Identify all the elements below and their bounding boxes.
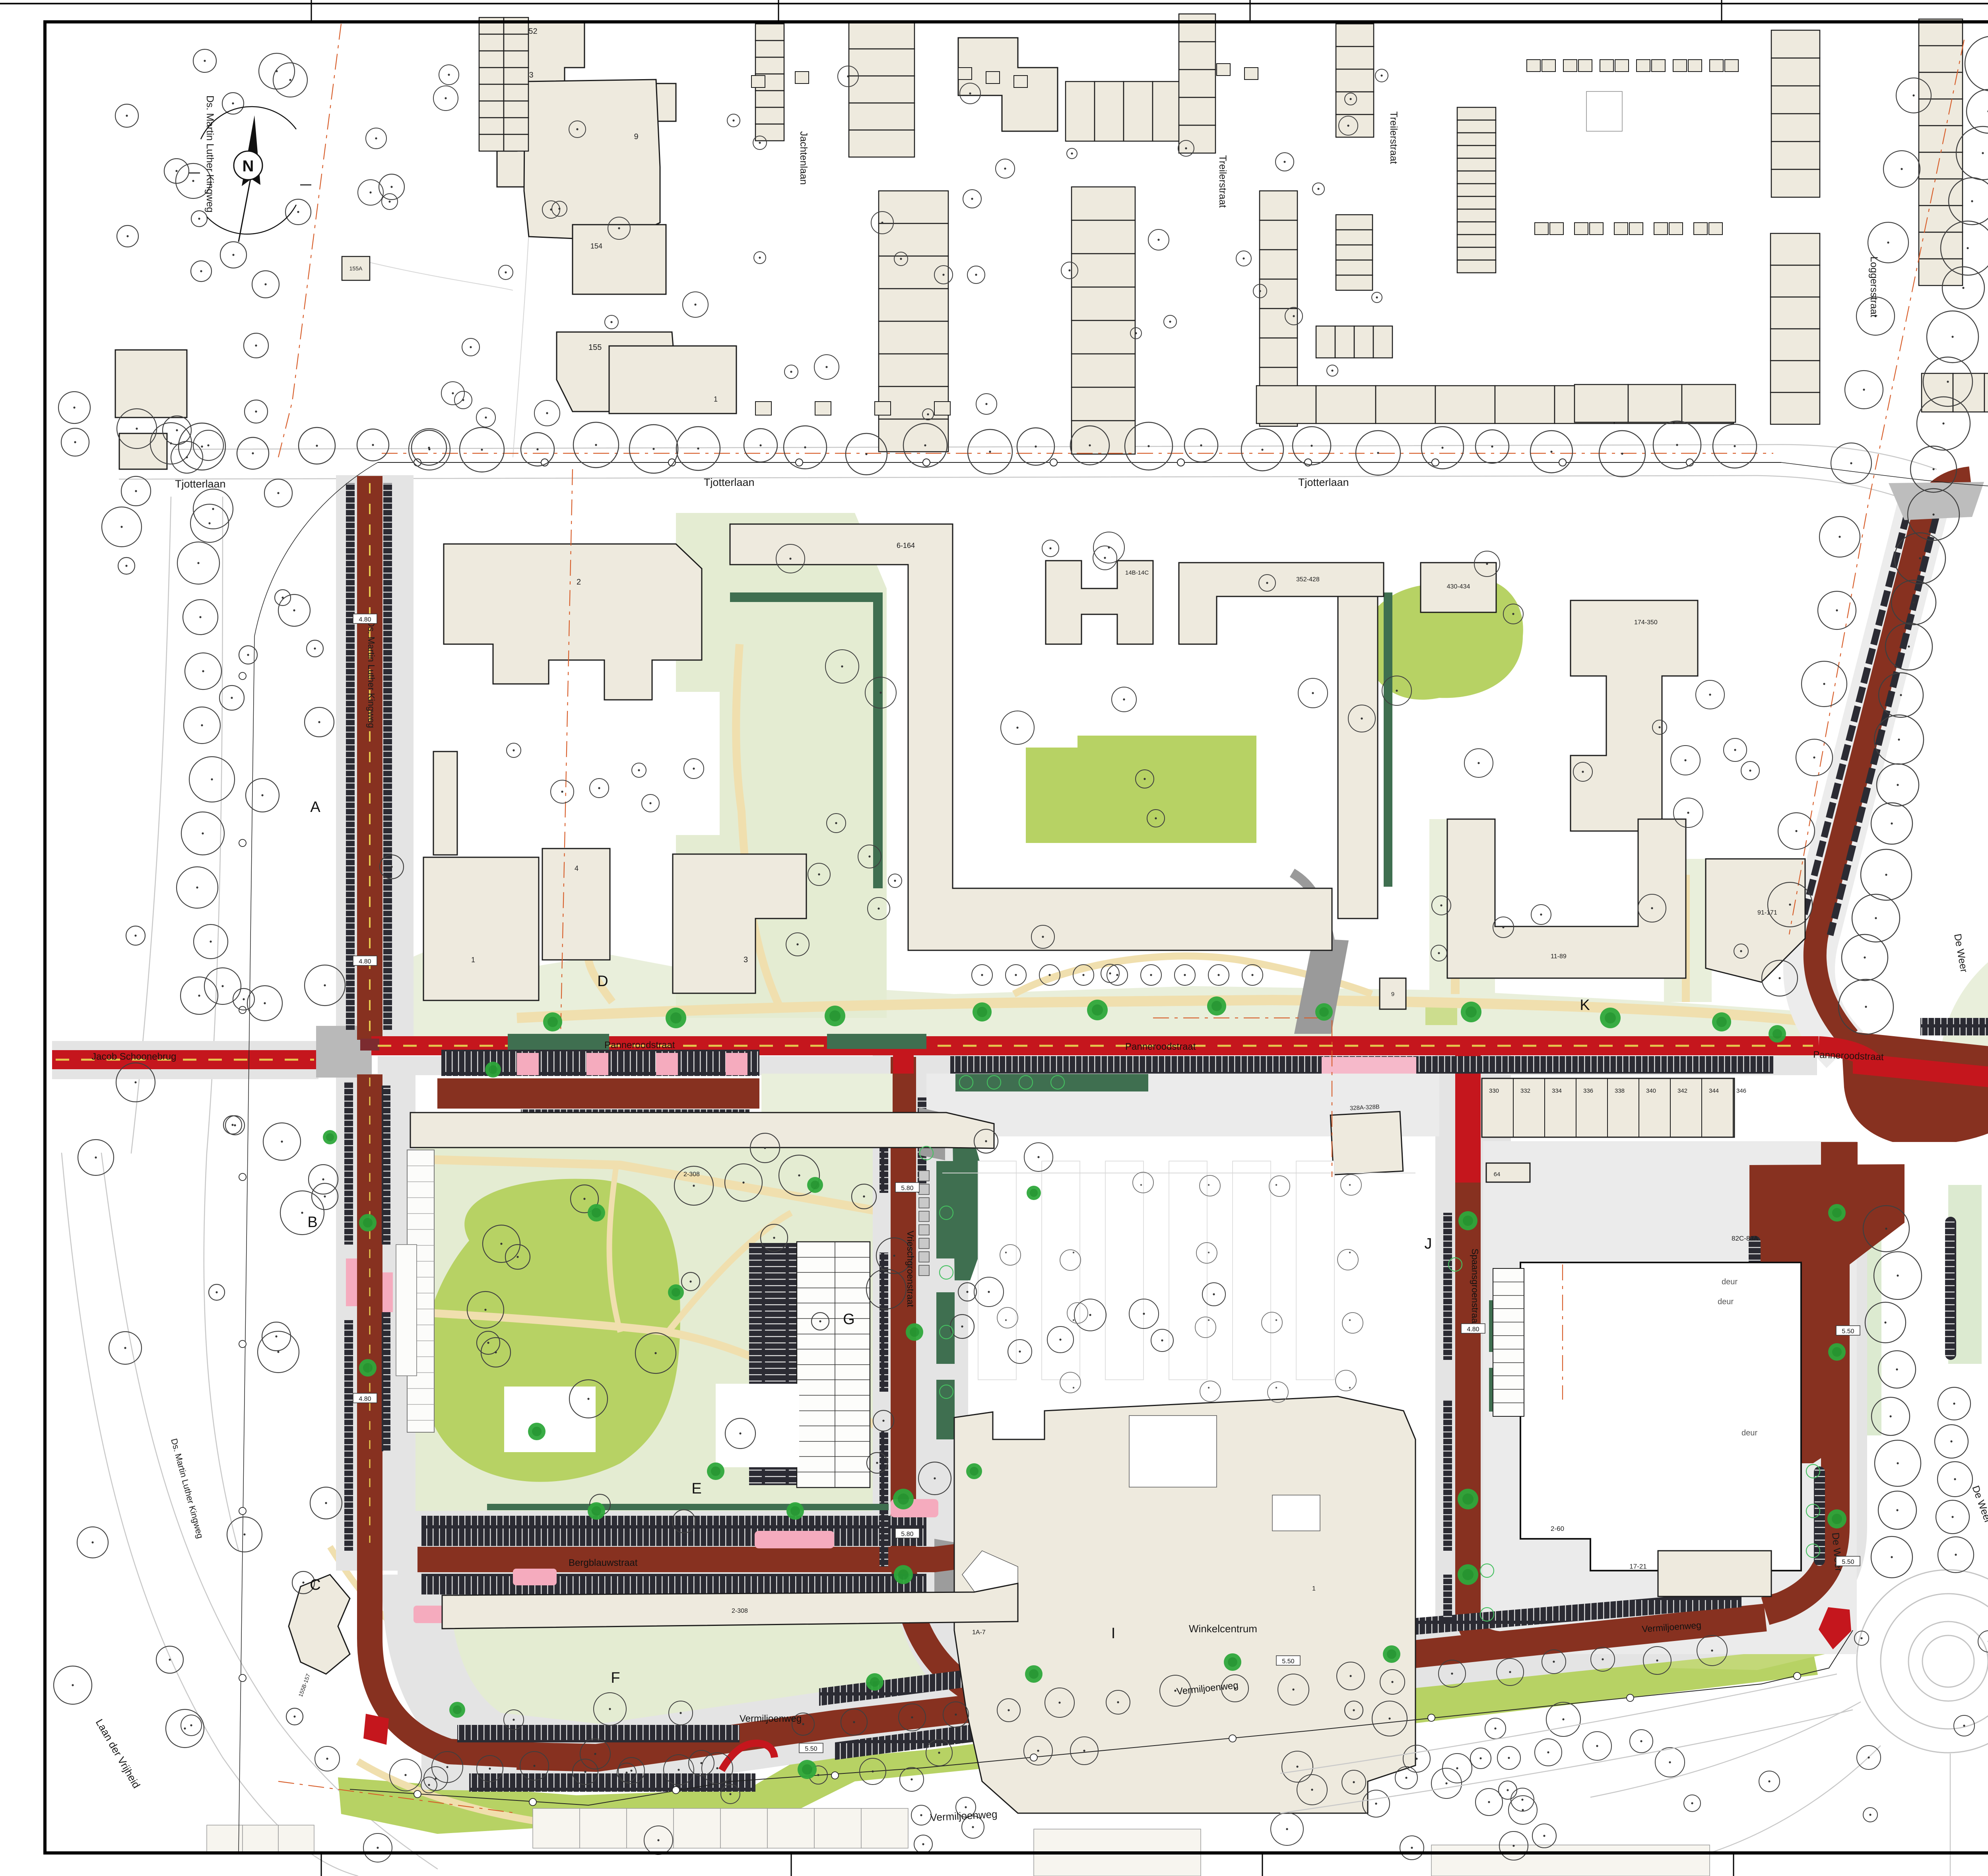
- svg-text:2: 2: [577, 578, 581, 586]
- svg-text:155: 155: [588, 343, 602, 352]
- svg-text:1: 1: [714, 395, 718, 403]
- svg-text:Spaansgroenstraat: Spaansgroenstraat: [1470, 1249, 1480, 1326]
- svg-text:5.80: 5.80: [901, 1185, 913, 1192]
- svg-text:Ds. Martin Luther Kingweg: Ds. Martin Luther Kingweg: [204, 95, 215, 213]
- svg-text:1: 1: [1312, 1585, 1316, 1592]
- svg-text:F: F: [611, 1670, 620, 1686]
- svg-text:336: 336: [1583, 1088, 1593, 1094]
- svg-text:91-171: 91-171: [1757, 909, 1777, 916]
- svg-text:352-428: 352-428: [1296, 576, 1320, 583]
- svg-text:Bergblauwstraat: Bergblauwstraat: [569, 1558, 638, 1568]
- svg-text:338: 338: [1615, 1088, 1625, 1094]
- svg-text:J: J: [1425, 1235, 1432, 1252]
- svg-text:340: 340: [1646, 1088, 1656, 1094]
- svg-text:E: E: [691, 1480, 701, 1497]
- svg-text:N: N: [243, 157, 254, 175]
- svg-text:5.50: 5.50: [805, 1746, 817, 1752]
- svg-text:Tjotterlaan: Tjotterlaan: [704, 476, 755, 488]
- svg-text:4.80: 4.80: [359, 958, 371, 965]
- svg-text:Winkelcentrum: Winkelcentrum: [1189, 1623, 1257, 1635]
- svg-text:82C-83A: 82C-83A: [1732, 1235, 1759, 1242]
- svg-text:5.50: 5.50: [1842, 1559, 1854, 1565]
- svg-text:3: 3: [744, 955, 748, 964]
- svg-text:4: 4: [575, 864, 579, 872]
- svg-text:Panneroodstraat: Panneroodstraat: [604, 1040, 675, 1051]
- svg-text:5.50: 5.50: [1282, 1658, 1294, 1665]
- svg-text:342: 342: [1677, 1088, 1687, 1094]
- svg-text:4.80: 4.80: [1467, 1326, 1479, 1333]
- svg-text:Vrieschgroenstraat: Vrieschgroenstraat: [905, 1231, 916, 1307]
- svg-text:11-89: 11-89: [1551, 953, 1567, 960]
- svg-text:I: I: [1111, 1625, 1116, 1642]
- svg-text:D: D: [597, 973, 608, 990]
- svg-text:Tjotterlaan: Tjotterlaan: [1298, 476, 1349, 488]
- svg-text:Loggersstraat: Loggersstraat: [1868, 256, 1879, 317]
- svg-text:K: K: [1580, 997, 1590, 1014]
- svg-text:2-308: 2-308: [683, 1171, 700, 1178]
- svg-text:9: 9: [634, 132, 638, 141]
- svg-text:1: 1: [471, 956, 475, 964]
- svg-text:5.50: 5.50: [1842, 1328, 1854, 1335]
- svg-text:Treilerstraat: Treilerstraat: [1388, 111, 1399, 164]
- svg-text:Tjotterlaan: Tjotterlaan: [175, 478, 226, 490]
- svg-text:346: 346: [1736, 1088, 1746, 1094]
- svg-text:9: 9: [1391, 991, 1394, 998]
- svg-text:154: 154: [590, 242, 602, 250]
- svg-text:Jacob Schoonebrug: Jacob Schoonebrug: [91, 1051, 177, 1062]
- svg-text:Panneroodstraat: Panneroodstraat: [1125, 1041, 1196, 1052]
- svg-text:330: 330: [1489, 1088, 1499, 1094]
- svg-text:344: 344: [1709, 1088, 1719, 1094]
- svg-text:Ds. Martin Luther Kingweg: Ds. Martin Luther Kingweg: [366, 620, 377, 728]
- svg-text:A: A: [310, 799, 320, 816]
- svg-text:Vermiljoenweg: Vermiljoenweg: [740, 1713, 802, 1724]
- svg-text:2-308: 2-308: [732, 1608, 748, 1614]
- svg-text:G: G: [843, 1311, 855, 1328]
- svg-text:155A: 155A: [349, 265, 363, 272]
- svg-text:4.80: 4.80: [359, 1396, 371, 1402]
- svg-text:deur: deur: [1722, 1278, 1738, 1286]
- svg-text:B: B: [307, 1214, 317, 1231]
- svg-text:14B-14C: 14B-14C: [1125, 569, 1149, 576]
- svg-text:C: C: [310, 1577, 320, 1593]
- svg-text:deur: deur: [1741, 1429, 1757, 1437]
- svg-text:334: 334: [1552, 1088, 1562, 1094]
- svg-text:6-164: 6-164: [897, 542, 915, 550]
- svg-text:5.80: 5.80: [901, 1531, 913, 1538]
- svg-text:4.80: 4.80: [359, 616, 371, 623]
- svg-text:174-350: 174-350: [1634, 619, 1658, 626]
- svg-text:deur: deur: [1718, 1297, 1734, 1306]
- svg-text:2-60: 2-60: [1551, 1525, 1564, 1532]
- svg-text:64: 64: [1494, 1171, 1501, 1178]
- svg-text:Treilerstraat: Treilerstraat: [1217, 155, 1228, 208]
- svg-text:Jachtenlaan: Jachtenlaan: [798, 131, 809, 185]
- svg-text:430-434: 430-434: [1447, 583, 1470, 590]
- svg-text:332: 332: [1520, 1088, 1530, 1094]
- svg-text:17-21: 17-21: [1629, 1563, 1646, 1570]
- svg-text:1A-7: 1A-7: [972, 1629, 986, 1636]
